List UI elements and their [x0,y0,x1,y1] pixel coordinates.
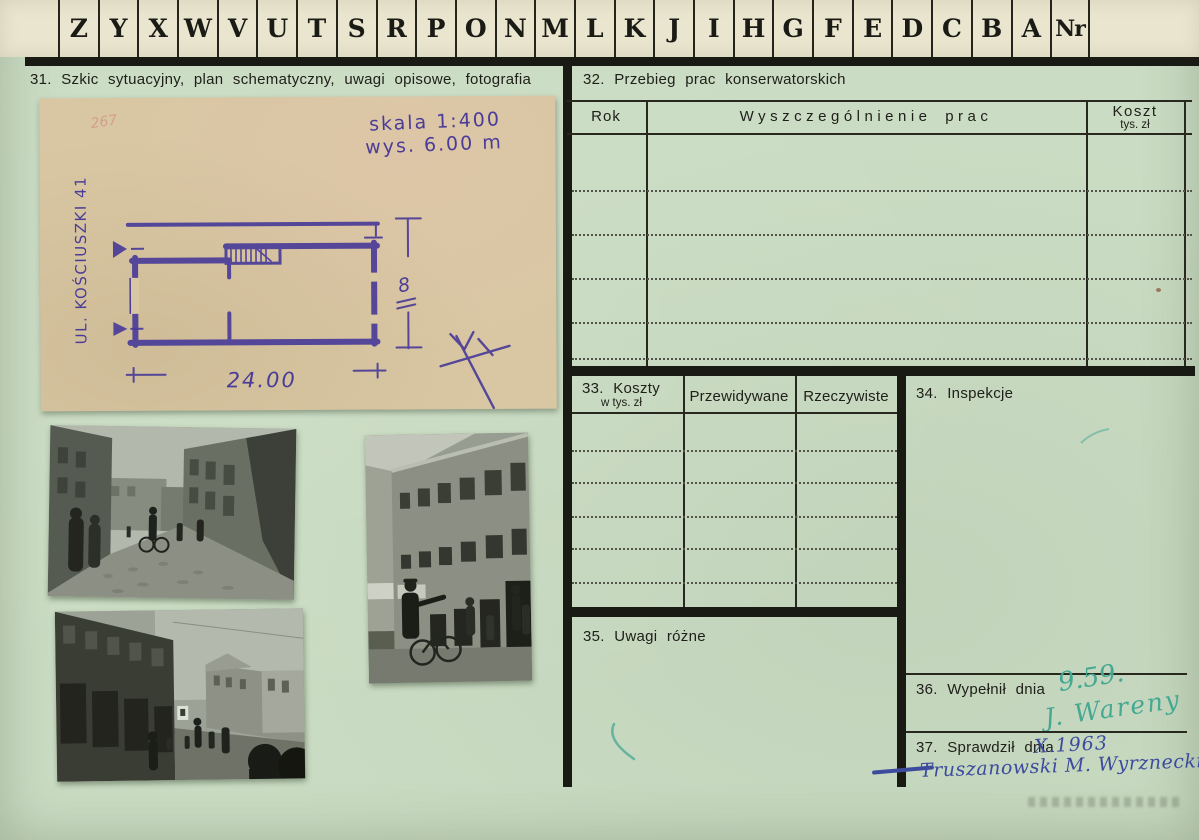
table33-row-line [572,482,897,484]
index-letter: U [256,0,296,57]
section37-top-line [906,731,1187,733]
height-dimension-label: 8 [396,274,412,298]
table33-divider-1 [683,376,685,607]
table33-divider-2 [795,376,797,607]
section36-handwritten-date: 9.59. [1056,658,1126,698]
paper-speck [1156,288,1161,292]
section33-bottom-bar [563,607,906,617]
index-letter: J [653,0,693,57]
north-arrow-doodle [440,332,509,408]
pencil-archive-number: 267 [90,112,119,132]
sketch-paper: 267 skala 1:400 wys. 6.00 m UL. KOŚCIUSZ… [39,96,557,412]
record-card: Z Y X W V U T S R P O N M L K J I H G F … [0,0,1199,840]
table33-row-line [572,582,897,584]
table33-row-line [572,548,897,550]
index-letter: R [376,0,416,57]
index-letter: A [1011,0,1051,57]
section33-title-line1: 33. Koszty [582,380,660,397]
table32-header-bottom-line [567,133,1192,135]
table32-col-prace: Wyszczególnienie prac [646,108,1086,125]
stray-teal-mark [1078,426,1112,446]
index-letter: B [971,0,1011,57]
index-letter: Y [98,0,138,57]
table33-row-line [572,450,897,452]
index-letter: H [733,0,773,57]
index-letter: I [693,0,733,57]
index-letter: F [812,0,852,57]
ink-bleed-smudge [1028,797,1180,807]
index-nr-label: Nr [1050,0,1090,57]
secondary-vertical-divider [897,371,906,787]
table32-col-koszt-sub: tys. zł [1086,119,1184,131]
table32-row-line [572,234,1192,236]
index-letter: N [495,0,535,57]
index-letter: G [772,0,812,57]
table33-header-bottom-line [572,412,897,414]
paper-speck [795,515,798,518]
section32-bottom-bar [563,366,1195,376]
index-letter: M [534,0,574,57]
main-vertical-divider [563,66,572,787]
index-letter: S [336,0,376,57]
alphabet-index-cells: Z Y X W V U T S R P O N M L K J I H G F … [58,0,1090,57]
entrance-arrows [113,241,127,336]
photo-facade-policeman [365,433,532,684]
floor-plan-sketch: 267 skala 1:400 wys. 6.00 m UL. KOŚCIUSZ… [39,96,557,412]
section34-title: 34. Inspekcje [916,385,1013,402]
index-letter: T [296,0,336,57]
index-letter: E [852,0,892,57]
table33-col-przewidywane: Przewidywane [683,388,795,405]
index-letter: O [455,0,495,57]
section36-top-line [906,673,1187,675]
index-letter: K [614,0,654,57]
index-letter: L [574,0,614,57]
stray-teal-stroke [606,722,650,762]
index-letter: X [137,0,177,57]
table32-right-border [1184,100,1186,366]
street-name-label: UL. KOŚCIUSZKI 41 [71,176,91,345]
table32-row-line [572,190,1192,192]
top-divider-bar [25,57,1199,66]
index-letter: V [217,0,257,57]
index-letter: C [931,0,971,57]
table32-rok-divider [646,100,648,366]
section35-title: 35. Uwagi różne [583,628,706,645]
index-letter: D [891,0,931,57]
table33-row-line [572,516,897,518]
table32-koszt-divider [1086,100,1088,366]
table32-col-rok: Rok [566,108,646,125]
width-dimension-label: 24.00 [227,368,297,392]
table32-header-top-line [567,100,1192,102]
photo-street-cobbles [48,425,297,600]
scale-note-line2: wys. 6.00 m [365,131,503,159]
table33-col-rzeczywiste: Rzeczywiste [795,388,897,405]
section33-title-line2: w tys. zł [601,397,642,409]
index-letter: P [415,0,455,57]
section32-title: 32. Przebieg prac konserwatorskich [583,71,846,88]
section31-title: 31. Szkic sytuacyjny, plan schematyczny,… [30,71,531,88]
table32-row-line [572,358,1192,360]
index-letter: W [177,0,217,57]
table32-row-line [572,278,1192,280]
section36-title: 36. Wypełnił dnia [916,681,1045,698]
table32-row-line [572,322,1192,324]
table32-col-koszt: Koszt [1086,103,1184,120]
index-letter: Z [58,0,98,57]
photo-street-shopfronts [55,608,305,781]
